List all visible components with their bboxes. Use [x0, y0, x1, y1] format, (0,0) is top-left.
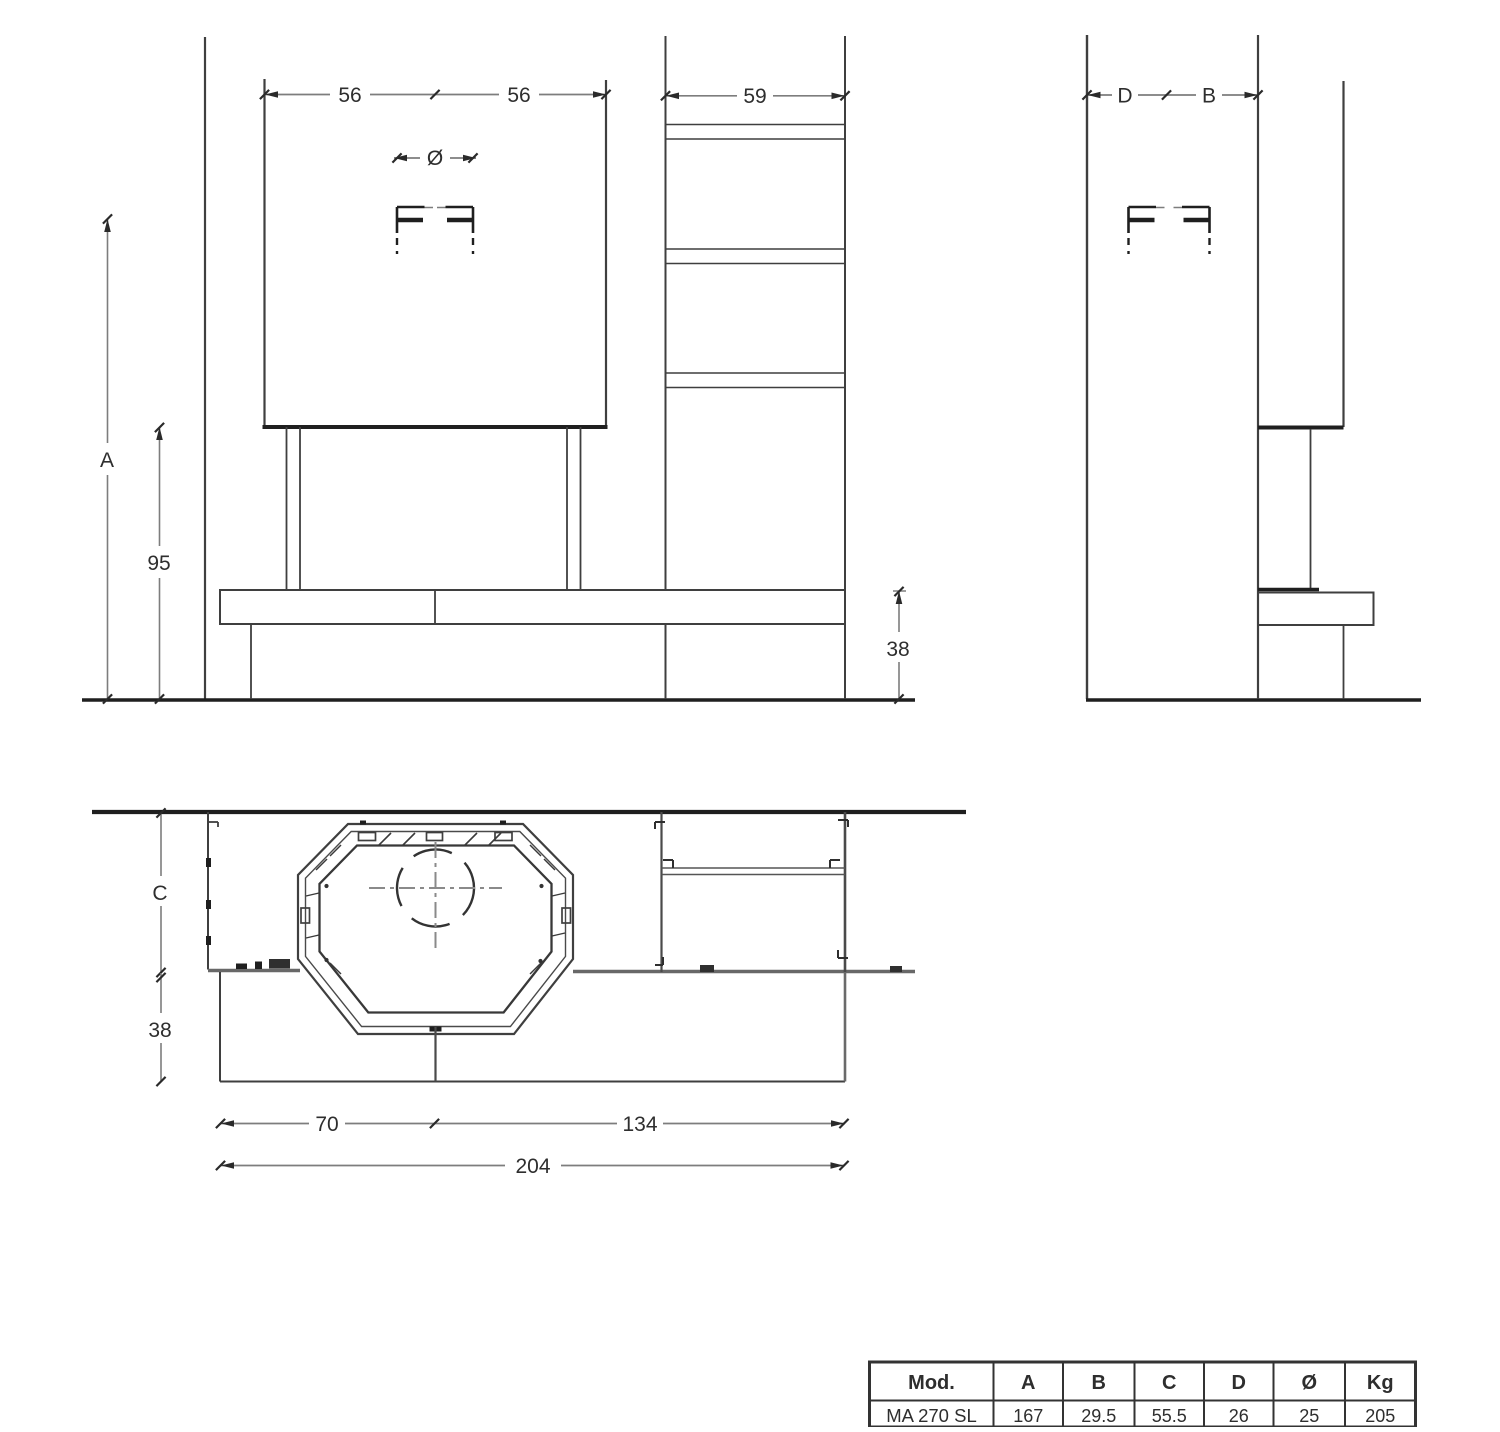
svg-text:C: C: [152, 882, 167, 905]
svg-text:Kg: Kg: [1367, 1372, 1394, 1394]
svg-text:38: 38: [886, 638, 909, 661]
svg-text:70: 70: [315, 1113, 338, 1136]
svg-text:55.5: 55.5: [1152, 1406, 1187, 1426]
svg-text:26: 26: [1229, 1406, 1249, 1426]
svg-text:56: 56: [507, 84, 530, 107]
svg-text:MA 270 SL: MA 270 SL: [886, 1405, 977, 1426]
svg-text:38: 38: [148, 1019, 171, 1042]
svg-text:59: 59: [743, 85, 766, 108]
svg-text:95: 95: [147, 552, 170, 575]
svg-text:Ø: Ø: [427, 147, 443, 170]
svg-text:Ø: Ø: [1301, 1372, 1317, 1394]
svg-text:D: D: [1232, 1372, 1246, 1394]
svg-text:29.5: 29.5: [1081, 1406, 1116, 1426]
svg-text:56: 56: [338, 84, 361, 107]
svg-text:A: A: [1021, 1372, 1035, 1394]
svg-text:A: A: [100, 449, 114, 472]
svg-text:25: 25: [1299, 1406, 1319, 1426]
svg-text:Mod.: Mod.: [908, 1372, 955, 1394]
svg-text:C: C: [1162, 1372, 1176, 1394]
svg-text:205: 205: [1365, 1406, 1395, 1426]
svg-text:167: 167: [1013, 1406, 1043, 1426]
svg-text:B: B: [1092, 1372, 1106, 1394]
svg-text:134: 134: [622, 1113, 657, 1136]
svg-text:D: D: [1117, 85, 1132, 108]
svg-text:B: B: [1202, 85, 1216, 108]
svg-text:204: 204: [515, 1155, 550, 1178]
